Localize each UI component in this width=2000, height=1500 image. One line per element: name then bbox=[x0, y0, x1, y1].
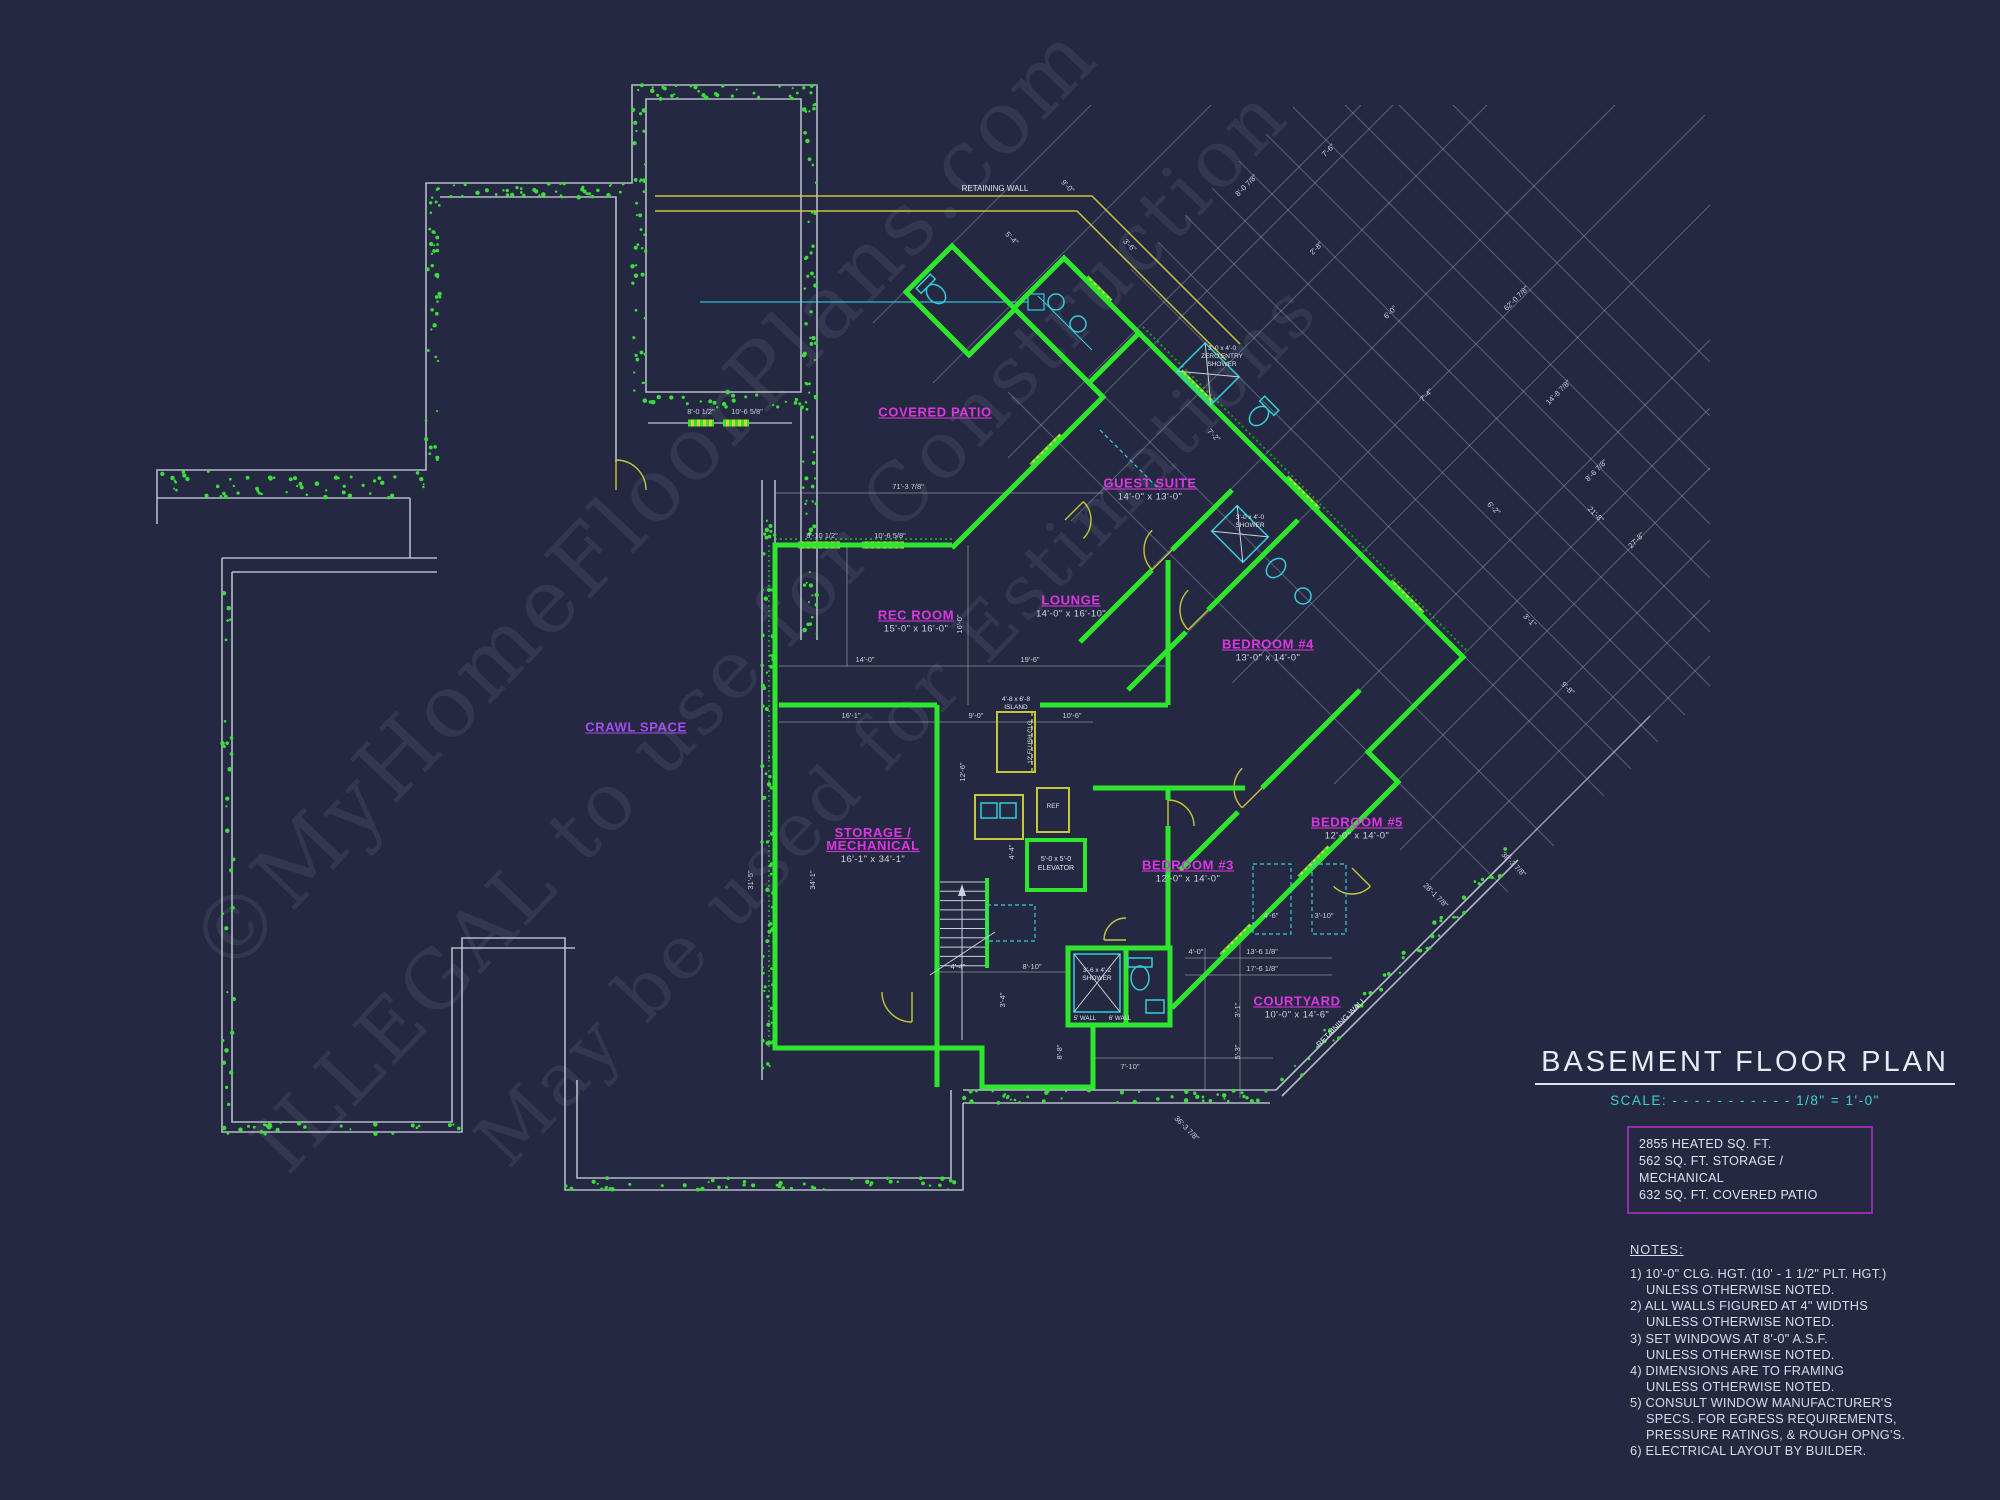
scale-prefix: SCALE: bbox=[1610, 1093, 1667, 1108]
annotation-text: SHOWER bbox=[1082, 975, 1112, 982]
scale-value: 1/8" = 1'-0" bbox=[1796, 1093, 1880, 1108]
annotation-text: 3'-0 x 4'-0 bbox=[1208, 345, 1237, 352]
note-line: 2) ALL WALLS FIGURED AT 4" WIDTHS bbox=[1630, 1298, 1980, 1314]
dimension-text: 13'-6 1/8" bbox=[1246, 947, 1278, 956]
dimension-text: 17'-6 1/8" bbox=[1246, 964, 1278, 973]
sheet-scale: SCALE: - - - - - - - - - - - 1/8" = 1'-0… bbox=[1500, 1093, 1990, 1108]
dimension-text: 3'-4" bbox=[998, 992, 1007, 1007]
dimension-text: 14'-0" bbox=[855, 655, 874, 664]
dimension-text: 31'-5" bbox=[746, 870, 755, 889]
notes-lines: 1) 10'-0" CLG. HGT. (10' - 1 1/2" PLT. H… bbox=[1630, 1266, 1980, 1459]
dimension-text: 16'-1" bbox=[841, 711, 860, 720]
dimension-text: 3'-1" bbox=[1233, 1002, 1242, 1017]
note-line: UNLESS OTHERWISE NOTED. bbox=[1630, 1314, 1980, 1330]
dimension-text: 9'-0" bbox=[969, 711, 984, 720]
dimension-text: 4'-4" bbox=[1007, 844, 1016, 859]
title-block: BASEMENT FLOOR PLAN SCALE: - - - - - - -… bbox=[1500, 1046, 1990, 1108]
dimension-text: 12'-6" bbox=[958, 762, 967, 781]
annotation-text: 5' WALL bbox=[1074, 1016, 1097, 1022]
note-line: 6) ELECTRICAL LAYOUT BY BUILDER. bbox=[1630, 1443, 1980, 1459]
dimension-text: 10'-6" bbox=[1062, 711, 1081, 720]
dimension-text: 4'-6" bbox=[1264, 911, 1279, 920]
area-line: 2855 HEATED SQ. FT. bbox=[1639, 1136, 1865, 1153]
square-footage-box: 2855 HEATED SQ. FT.562 SQ. FT. STORAGE /… bbox=[1627, 1126, 1873, 1214]
dimension-text: 8'-8" bbox=[1055, 1044, 1064, 1059]
dimension-text: 7'-10" bbox=[1120, 1062, 1139, 1071]
dimension-text: 19'-6" bbox=[1020, 655, 1039, 664]
dimension-text: 10'-6 5/8" bbox=[731, 407, 763, 416]
note-line: UNLESS OTHERWISE NOTED. bbox=[1630, 1347, 1980, 1363]
dimension-text: 34'-1" bbox=[808, 870, 817, 889]
annotation-text: REF bbox=[1047, 803, 1060, 810]
dimension-text: 16'-0" bbox=[955, 614, 964, 633]
annotation-text: 6' WALL bbox=[1109, 1016, 1132, 1022]
dimension-text: 8'-10 1/2" bbox=[806, 531, 838, 540]
sheet-title: BASEMENT FLOOR PLAN bbox=[1535, 1046, 1955, 1085]
note-line: UNLESS OTHERWISE NOTED. bbox=[1630, 1379, 1980, 1395]
area-line: 632 SQ. FT. COVERED PATIO bbox=[1639, 1187, 1865, 1204]
dimension-text: 4'-4" bbox=[951, 962, 966, 971]
annotation-text: RETAINING WALL bbox=[962, 184, 1029, 193]
note-line: 3) SET WINDOWS AT 8'-0" A.S.F. bbox=[1630, 1331, 1980, 1347]
note-line: 1) 10'-0" CLG. HGT. (10' - 1 1/2" PLT. H… bbox=[1630, 1266, 1980, 1282]
dimension-text: 3'-10" bbox=[1314, 911, 1333, 920]
dimension-text: 8'-0 1/2" bbox=[687, 407, 715, 416]
annotation-text: 3'-0 x 4'-0 bbox=[1236, 514, 1265, 521]
dimension-text: 10'-6 5/8" bbox=[874, 531, 906, 540]
dimension-text: 5'-3" bbox=[1233, 1044, 1242, 1059]
annotation-text: 5'-0 x 5'-0 bbox=[1041, 856, 1071, 863]
note-line: 5) CONSULT WINDOW MANUFACTURER'S bbox=[1630, 1395, 1980, 1411]
floorplan-sheet: ©MyHomeFloorPlans.comILLEGAL to use for … bbox=[0, 0, 2000, 1500]
area-line: 562 SQ. FT. STORAGE / MECHANICAL bbox=[1639, 1153, 1865, 1187]
annotation-text: SHOWER bbox=[1235, 522, 1265, 529]
dimension-text: 4'-0" bbox=[1189, 947, 1204, 956]
dimension-text: 71'-3 7/8" bbox=[892, 482, 924, 491]
note-line: UNLESS OTHERWISE NOTED. bbox=[1630, 1282, 1980, 1298]
annotation-text: SHOWER bbox=[1207, 361, 1237, 368]
dimension-text: 8'-10" bbox=[1022, 962, 1041, 971]
annotation-text: ELEVATOR bbox=[1038, 865, 1074, 872]
notes-heading: NOTES: bbox=[1630, 1242, 1980, 1258]
annotation-text: 12' FLUSH CLG bbox=[1028, 720, 1034, 763]
annotation-text: 4'-8 x 6'-8 bbox=[1002, 696, 1031, 703]
notes-block: NOTES: 1) 10'-0" CLG. HGT. (10' - 1 1/2"… bbox=[1630, 1242, 1980, 1459]
note-line: 4) DIMENSIONS ARE TO FRAMING bbox=[1630, 1363, 1980, 1379]
annotation-text: 3'-6 x 4'-2 bbox=[1083, 967, 1112, 974]
annotation-text: ISLAND bbox=[1004, 704, 1028, 711]
note-line: SPECS. FOR EGRESS REQUIREMENTS, bbox=[1630, 1411, 1980, 1427]
annotation-text: ZERO ENTRY bbox=[1201, 353, 1243, 360]
scale-dashes: - - - - - - - - - - - bbox=[1672, 1093, 1790, 1108]
note-line: PRESSURE RATINGS, & ROUGH OPNG'S. bbox=[1630, 1427, 1980, 1443]
